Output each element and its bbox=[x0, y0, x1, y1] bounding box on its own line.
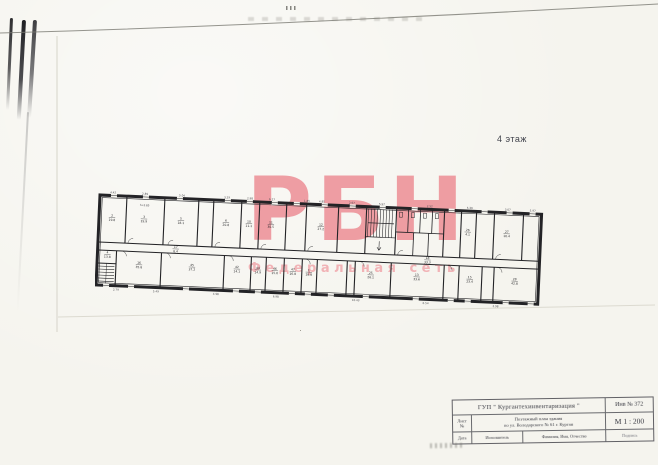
doc-title-line2: по ул. Володарского № 61 г. Курган bbox=[504, 422, 573, 429]
svg-text:42.8: 42.8 bbox=[511, 281, 518, 285]
svg-text:19.9: 19.9 bbox=[140, 219, 147, 223]
svg-text:35.8: 35.8 bbox=[135, 265, 142, 269]
svg-text:5.04: 5.04 bbox=[179, 193, 185, 197]
svg-text:4.98: 4.98 bbox=[213, 292, 219, 296]
svg-text:4.1: 4.1 bbox=[465, 232, 470, 236]
svg-text:6.54: 6.54 bbox=[423, 301, 429, 305]
svg-text:33.3: 33.3 bbox=[424, 260, 431, 264]
title-block-doc-title: Поэтажный план здания по ул. Володарског… bbox=[472, 413, 606, 431]
svg-text:16.4: 16.4 bbox=[503, 234, 510, 238]
svg-text:5.49: 5.49 bbox=[153, 289, 159, 293]
svg-text:6.98: 6.98 bbox=[273, 294, 279, 298]
plan-door-arcs bbox=[121, 238, 502, 273]
title-block-sheet-label: Лист № bbox=[453, 415, 472, 431]
svg-text:2.97: 2.97 bbox=[349, 201, 355, 205]
svg-text:27.2: 27.2 bbox=[317, 227, 324, 231]
plan-stair-center bbox=[365, 209, 397, 251]
svg-text:33.6: 33.6 bbox=[413, 277, 420, 281]
svg-text:18.8: 18.8 bbox=[305, 272, 312, 276]
title-block-signature-label: Подпись bbox=[606, 429, 653, 441]
plan-room-labels: 219.8319.9518.1620.81011.11130.51227.226… bbox=[103, 201, 520, 285]
svg-text:5.97: 5.97 bbox=[530, 209, 536, 213]
svg-text:11.1: 11.1 bbox=[245, 224, 252, 228]
svg-text:10.43: 10.43 bbox=[352, 298, 360, 302]
sheet-no-label: № bbox=[460, 423, 464, 428]
plan-corridor-lines bbox=[99, 242, 539, 269]
svg-text:6.27: 6.27 bbox=[269, 197, 275, 201]
title-block: ГУП " Кургантехинвентаризация " Инв № 37… bbox=[452, 396, 655, 444]
svg-text:5.97: 5.97 bbox=[379, 202, 385, 206]
svg-text:26.1: 26.1 bbox=[367, 275, 374, 279]
svg-text:h=2.85: h=2.85 bbox=[140, 203, 150, 207]
scanned-sheet: { "floor_label": "4 этаж", "watermark": … bbox=[0, 0, 658, 465]
title-block-inventory-number: Инв № 372 bbox=[606, 397, 653, 412]
plan-partitions-top bbox=[125, 197, 524, 260]
svg-text:8.4: 8.4 bbox=[173, 249, 178, 253]
svg-text:3.29: 3.29 bbox=[224, 195, 230, 199]
svg-text:19.8: 19.8 bbox=[108, 218, 115, 222]
svg-text:2.79: 2.79 bbox=[113, 287, 119, 291]
svg-text:20.8: 20.8 bbox=[222, 223, 229, 227]
svg-text:1.85: 1.85 bbox=[304, 199, 310, 203]
title-block-name-label: Фамилия, Имя, Отчество bbox=[523, 430, 606, 442]
svg-text:2.98: 2.98 bbox=[492, 304, 498, 308]
title-block-executor-label: Исполнитель bbox=[472, 431, 523, 443]
svg-text:2.98: 2.98 bbox=[247, 196, 253, 200]
title-block-date-smudge bbox=[430, 443, 464, 449]
svg-text:37.2: 37.2 bbox=[188, 267, 195, 271]
svg-text:4.42: 4.42 bbox=[110, 190, 116, 194]
svg-text:14.9: 14.9 bbox=[254, 270, 261, 274]
svg-text:4.85: 4.85 bbox=[319, 199, 325, 203]
page-edge-curve bbox=[0, 4, 658, 33]
svg-text:18.1: 18.1 bbox=[177, 221, 184, 225]
svg-text:15.6: 15.6 bbox=[271, 271, 278, 275]
title-block-scale: М 1 : 200 bbox=[606, 412, 653, 429]
svg-text:14.1: 14.1 bbox=[233, 269, 240, 273]
svg-text:3.07: 3.07 bbox=[505, 207, 511, 211]
title-block-org: ГУП " Кургантехинвентаризация " bbox=[453, 398, 606, 414]
svg-text:23.4: 23.4 bbox=[466, 279, 473, 283]
svg-text:13.8: 13.8 bbox=[104, 255, 111, 259]
plan-wc-cluster bbox=[395, 209, 445, 257]
floor-plan: 219.8319.9518.1620.81011.11130.51227.226… bbox=[95, 189, 565, 324]
svg-text:2.52: 2.52 bbox=[427, 204, 433, 208]
svg-text:30.5: 30.5 bbox=[267, 225, 274, 229]
floor-label: 4 этаж bbox=[497, 134, 527, 144]
svg-text:16.8: 16.8 bbox=[289, 272, 296, 276]
svg-text:2.89: 2.89 bbox=[142, 192, 148, 196]
plan-stair-left bbox=[97, 263, 116, 284]
svg-text:5.30: 5.30 bbox=[467, 206, 473, 210]
floor-plan-svg: 219.8319.9518.1620.81011.11130.51227.226… bbox=[95, 189, 565, 319]
plan-dimension-labels: 4.422.895.043.292.986.271.854.852.975.97… bbox=[106, 190, 536, 309]
